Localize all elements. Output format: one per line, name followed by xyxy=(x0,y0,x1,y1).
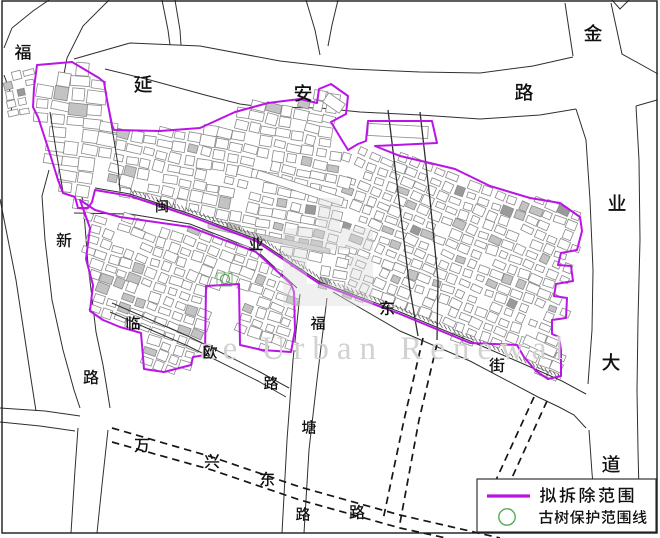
svg-text:ae Urban Renewal: ae Urban Renewal xyxy=(200,331,572,367)
